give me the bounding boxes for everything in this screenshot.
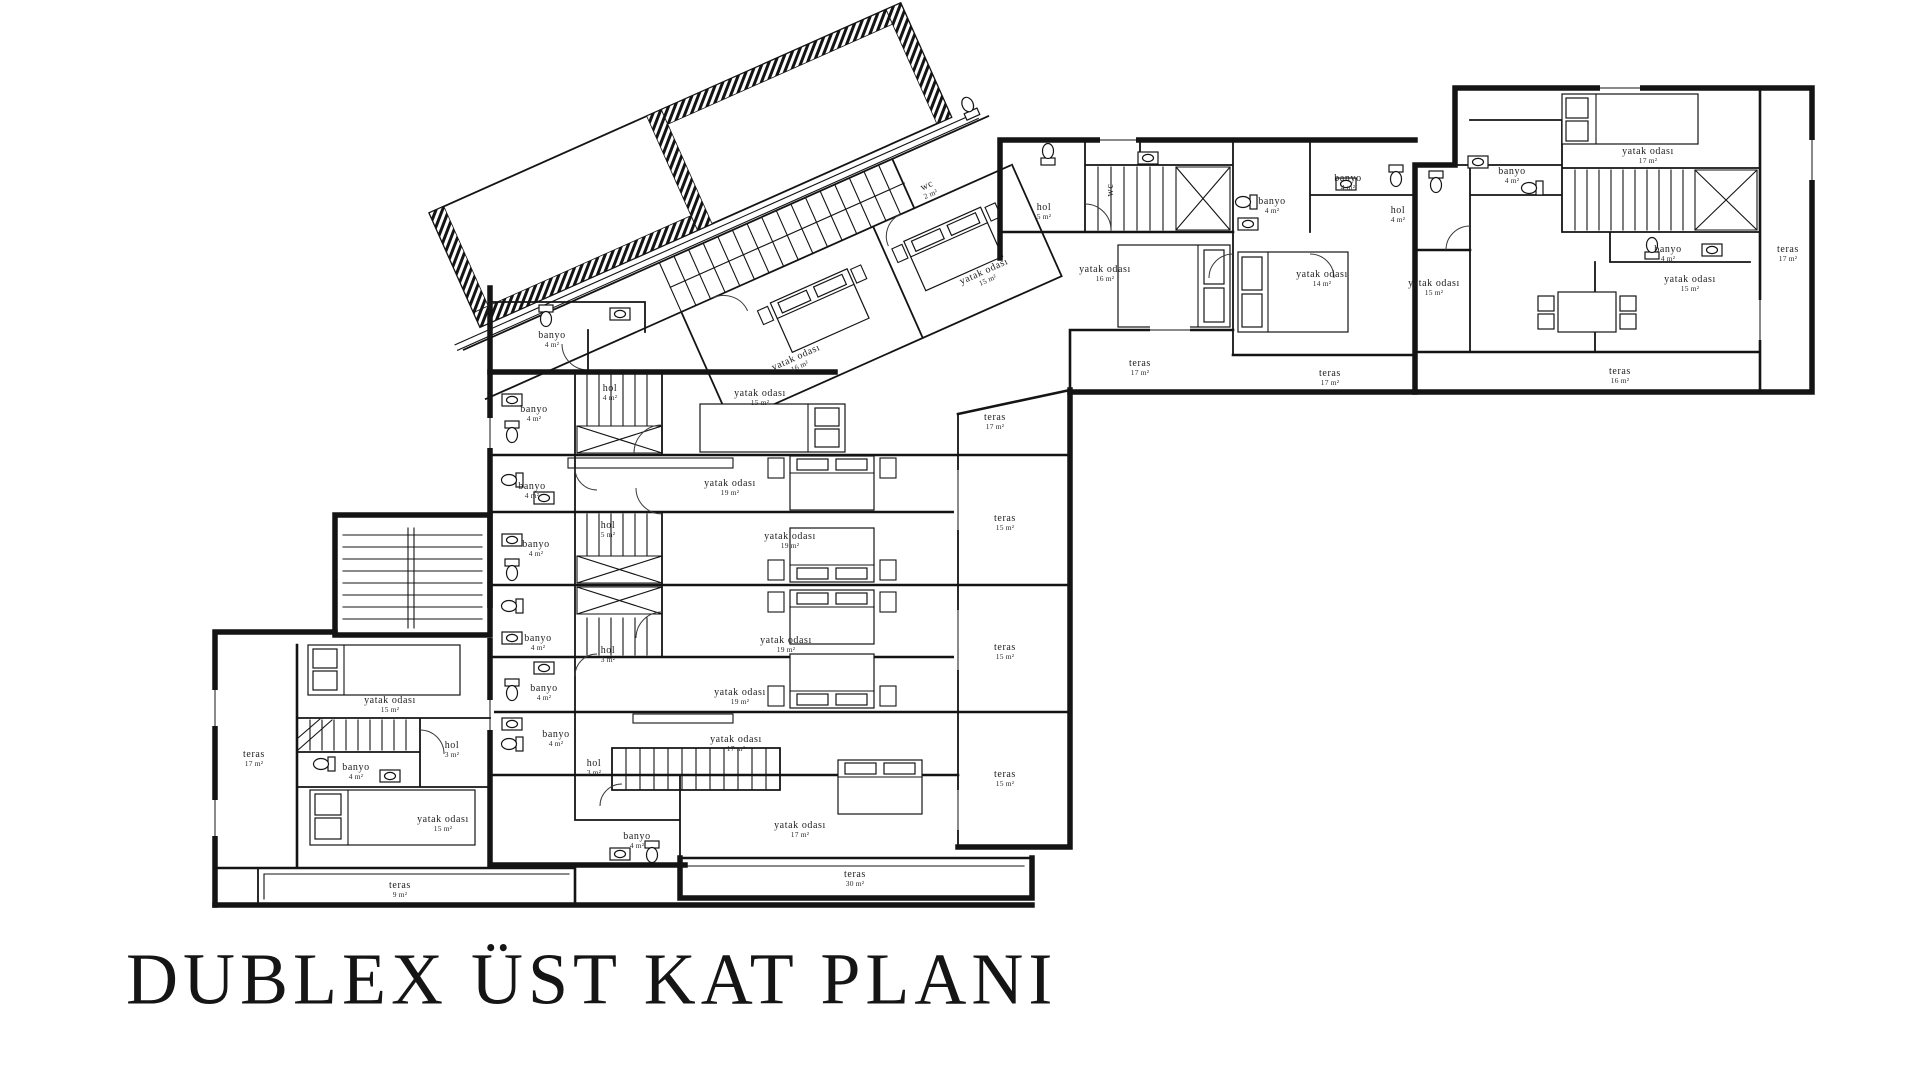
room-label: banyo4 m²: [530, 683, 557, 702]
room-label: teras15 m²: [994, 642, 1016, 661]
room-label: yatak odası15 m²: [1664, 274, 1716, 293]
room-label: banyo4 m²: [1654, 244, 1681, 263]
room-label: teras17 m²: [1319, 368, 1341, 387]
room-label: teras9 m²: [389, 880, 411, 899]
room-label: teras30 m²: [844, 869, 866, 888]
room-label: teras15 m²: [994, 769, 1016, 788]
room-label: yatak odası19 m²: [714, 687, 766, 706]
room-label: teras17 m²: [984, 412, 1006, 431]
bed: [1118, 245, 1230, 327]
room-label: hol5 m²: [601, 520, 616, 539]
room-label: hol3 m²: [601, 645, 616, 664]
room-label: banyo4 m²: [522, 539, 549, 558]
room-label: yatak odası15 m²: [364, 695, 416, 714]
plan-title: DUBLEX ÜST KAT PLANI: [126, 937, 1057, 1022]
room-label: yatak odası17 m²: [774, 820, 826, 839]
room-labels: yatak odası15 m²teras17 m²hol3 m²banyo4 …: [243, 146, 1799, 899]
bed: [1238, 252, 1348, 332]
room-label: yatak odası17 m²: [710, 734, 762, 753]
room-label: teras17 m²: [1129, 358, 1151, 377]
room-label: banyo4 m²: [1258, 196, 1285, 215]
room-label: hol4 m²: [1391, 205, 1406, 224]
room-label: banyo4 m²: [342, 762, 369, 781]
room-label: banyo4 m²: [524, 633, 551, 652]
room-label: teras17 m²: [1777, 244, 1799, 263]
room-label: hol3 m²: [587, 758, 602, 777]
floor-plan-drawing: yatak odası15 m²teras17 m²hol3 m²banyo4 …: [0, 0, 1920, 1080]
bed: [700, 404, 845, 452]
room-label: banyo4 m²: [520, 404, 547, 423]
room-label: teras17 m²: [243, 749, 265, 768]
external-staircase: [335, 515, 490, 635]
room-label: wc: [1105, 184, 1116, 197]
room-label: hol3 m²: [445, 740, 460, 759]
bed: [1562, 94, 1698, 144]
room-label: yatak odası19 m²: [704, 478, 756, 497]
bed: [308, 645, 460, 695]
room-label: hol4 m²: [603, 383, 618, 402]
room-label: yatak odası19 m²: [760, 635, 812, 654]
room-label: yatak odası17 m²: [1622, 146, 1674, 165]
room-label: teras15 m²: [994, 513, 1016, 532]
room-label: teras16 m²: [1609, 366, 1631, 385]
room-label: banyo4 m²: [542, 729, 569, 748]
room-label: banyo4 m²: [1498, 166, 1525, 185]
dining-set: [1538, 292, 1636, 332]
floor-plan-page: yatak odası15 m²teras17 m²hol3 m²banyo4 …: [0, 0, 1920, 1080]
top-right-units: [1415, 84, 1816, 392]
room-label: hol5 m²: [1037, 202, 1052, 221]
